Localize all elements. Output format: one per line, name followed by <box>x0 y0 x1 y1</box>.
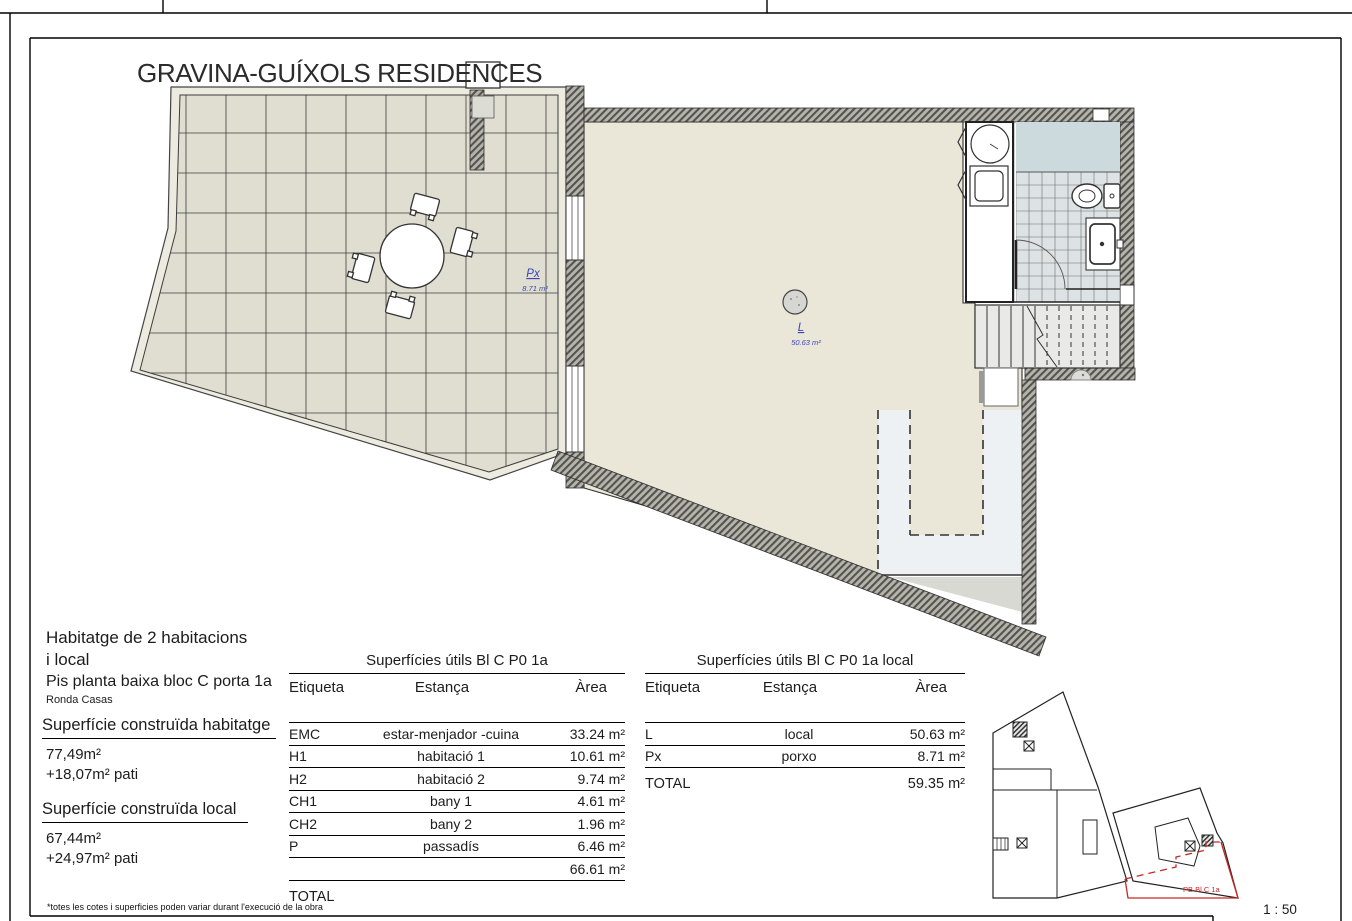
row-room: bany 1 <box>369 793 533 809</box>
round-table <box>380 224 444 288</box>
row-room: habitació 1 <box>369 748 533 764</box>
stair-core-icon <box>993 838 1008 850</box>
elevator-icon <box>1024 741 1034 751</box>
table-title: Superfícies útils Bl C P0 1a <box>289 652 625 674</box>
row-area: 8.71 m² <box>873 748 965 764</box>
row-area: 6.46 m² <box>533 838 625 854</box>
core-hatch-icon <box>1202 835 1213 846</box>
col-etiqueta: Etiqueta <box>289 679 369 696</box>
row-area: 33.24 m² <box>533 726 625 742</box>
table-rows: EMCestar-menjador -cuina33.24 m²H1habita… <box>289 723 625 881</box>
built-dwelling-patio: +18,07m² pati <box>46 766 138 783</box>
table-row: CH1bany 14.61 m² <box>289 791 625 814</box>
row-room: porxo <box>725 748 873 764</box>
built-local-label: Superfície construïda local <box>42 800 248 823</box>
row-label: L <box>645 726 725 742</box>
local-area-label: 50.63 m² <box>791 338 821 347</box>
disclaimer: *totes les cotes i superficies poden var… <box>47 902 323 912</box>
row-label: P <box>289 838 369 854</box>
address: Ronda Casas <box>46 694 113 706</box>
row-label: H1 <box>289 748 369 764</box>
drawing-sheet: Px 8.71 m² L 50.63 m² <box>0 0 1352 921</box>
scale-indicator: 1 : 50 <box>1245 902 1315 917</box>
table-rows: Llocal50.63 m²Pxporxo8.71 m² <box>645 723 965 768</box>
col-estanca: Estança <box>369 679 515 696</box>
dwelling-title-line1: Habitatge de 2 habitacions <box>46 628 247 648</box>
row-label: EMC <box>289 726 369 742</box>
dwelling-title-line2: i local <box>46 650 89 670</box>
local-code-label: L <box>798 322 804 334</box>
row-area: 10.61 m² <box>533 748 625 764</box>
row-label: Px <box>645 748 725 764</box>
table-header: Etiqueta Estança Àrea <box>645 674 965 701</box>
unit-label: PB Bl C 1a <box>1183 885 1221 894</box>
row-label: CH1 <box>289 793 369 809</box>
laundry-closet <box>958 122 1013 302</box>
total-label: TOTAL <box>645 776 725 792</box>
table-header: Etiqueta Estança Àrea <box>289 674 625 701</box>
elevator-icon <box>1185 841 1195 851</box>
col-area: Àrea <box>855 679 965 696</box>
table-total-row: TOTAL <box>289 881 625 907</box>
void-dashed-zone <box>878 410 1022 575</box>
header-rule <box>645 701 965 723</box>
bathroom <box>1013 122 1123 302</box>
dwelling-subtitle: Pis planta baixa bloc C porta 1a <box>46 673 272 691</box>
row-area: 4.61 m² <box>533 793 625 809</box>
table-title: Superfícies útils Bl C P0 1a local <box>645 652 965 674</box>
shower <box>1016 122 1120 172</box>
row-area: 50.63 m² <box>873 726 965 742</box>
header-rule <box>289 701 625 723</box>
col-estanca: Estança <box>725 679 855 696</box>
areas-table-local: Superfícies útils Bl C P0 1a local Etiqu… <box>645 652 965 794</box>
total-value: 59.35 m² <box>873 776 965 792</box>
porch-code-label: Px <box>526 268 541 280</box>
table-row: H2habitació 29.74 m² <box>289 768 625 791</box>
table-row: Pxporxo8.71 m² <box>645 746 965 769</box>
vanity-sink <box>1086 218 1123 270</box>
appliance-icon <box>970 166 1008 206</box>
row-room: habitació 2 <box>369 771 533 787</box>
stairs <box>975 305 1120 368</box>
built-local-value: 67,44m² <box>46 830 101 847</box>
col-area: Àrea <box>515 679 625 696</box>
elevator-icon <box>1017 838 1027 848</box>
table-row: Llocal50.63 m² <box>645 723 965 746</box>
table-total-row: TOTAL 59.35 m² <box>645 768 965 794</box>
row-area: 66.61 m² <box>533 861 625 877</box>
row-room: local <box>725 726 873 742</box>
table-row: 66.61 m² <box>289 858 625 881</box>
row-room: passadís <box>369 838 533 854</box>
top-wall-window <box>1093 109 1109 121</box>
table-row: Ppassadís6.46 m² <box>289 836 625 859</box>
page-title: GRAVINA-GUÍXOLS RESIDENCES <box>137 58 542 89</box>
areas-table-dwelling: Superfícies útils Bl C P0 1a Etiqueta Es… <box>289 652 625 907</box>
structural-column <box>783 290 807 314</box>
row-room: bany 2 <box>369 816 533 832</box>
toilet <box>1072 184 1120 208</box>
col-etiqueta: Etiqueta <box>645 679 725 696</box>
key-site-plan: PB Bl C 1a <box>993 692 1238 898</box>
table-row: H1habitació 110.61 m² <box>289 746 625 769</box>
table-row: CH2bany 21.96 m² <box>289 813 625 836</box>
row-area: 1.96 m² <box>533 816 625 832</box>
duct-pillar <box>984 368 1018 406</box>
row-label: CH2 <box>289 816 369 832</box>
row-label: H2 <box>289 771 369 787</box>
porch-area-label: 8.71 m² <box>522 284 548 293</box>
right-wall-opening <box>1120 285 1134 305</box>
built-dwelling-value: 77,49m² <box>46 746 101 763</box>
row-area: 9.74 m² <box>533 771 625 787</box>
table-row: EMCestar-menjador -cuina33.24 m² <box>289 723 625 746</box>
built-dwelling-label: Superfície construïda habitatge <box>42 716 276 739</box>
row-room: estar-menjador -cuina <box>369 726 533 742</box>
core-hatch-icon <box>1013 722 1027 737</box>
built-local-patio: +24,97m² pati <box>46 850 138 867</box>
local-room <box>584 122 1022 612</box>
